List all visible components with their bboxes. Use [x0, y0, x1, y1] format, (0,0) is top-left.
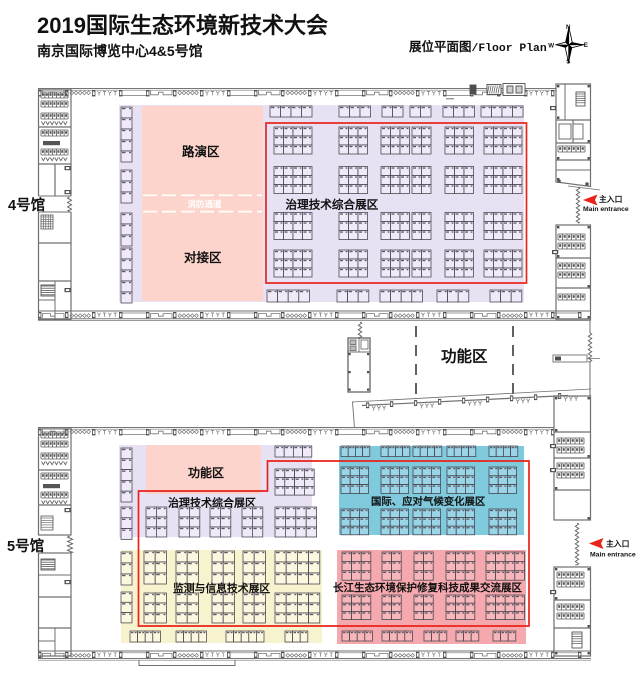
svg-text:N: N — [566, 24, 571, 31]
svg-text:主入口: 主入口 — [599, 194, 622, 204]
svg-text:功能区: 功能区 — [188, 465, 224, 480]
svg-text:治理技术综合展区: 治理技术综合展区 — [286, 198, 379, 212]
svg-text:主入口: 主入口 — [606, 539, 629, 549]
svg-text:W: W — [548, 42, 554, 49]
svg-text:5号馆: 5号馆 — [7, 537, 44, 555]
svg-text:Main entrance: Main entrance — [583, 206, 629, 213]
svg-text:功能区: 功能区 — [441, 347, 488, 366]
svg-text:S: S — [566, 59, 570, 66]
svg-text:路演区: 路演区 — [182, 144, 220, 159]
svg-text:长江生态环境保护修复科技成果交流展区: 长江生态环境保护修复科技成果交流展区 — [333, 581, 522, 594]
svg-text:Main entrance: Main entrance — [590, 552, 636, 559]
svg-text:4号馆: 4号馆 — [8, 196, 45, 214]
svg-text:E: E — [584, 42, 588, 49]
svg-text:对接区: 对接区 — [184, 250, 222, 265]
svg-text:展位平面图/Floor Plan: 展位平面图/Floor Plan — [409, 39, 547, 55]
svg-text:国际、应对气候变化展区: 国际、应对气候变化展区 — [371, 495, 486, 508]
svg-text:南京国际博览中心4&5号馆: 南京国际博览中心4&5号馆 — [37, 43, 203, 59]
svg-text:消防通道: 消防通道 — [188, 199, 223, 209]
svg-text:2019国际生态环境新技术大会: 2019国际生态环境新技术大会 — [37, 13, 328, 38]
